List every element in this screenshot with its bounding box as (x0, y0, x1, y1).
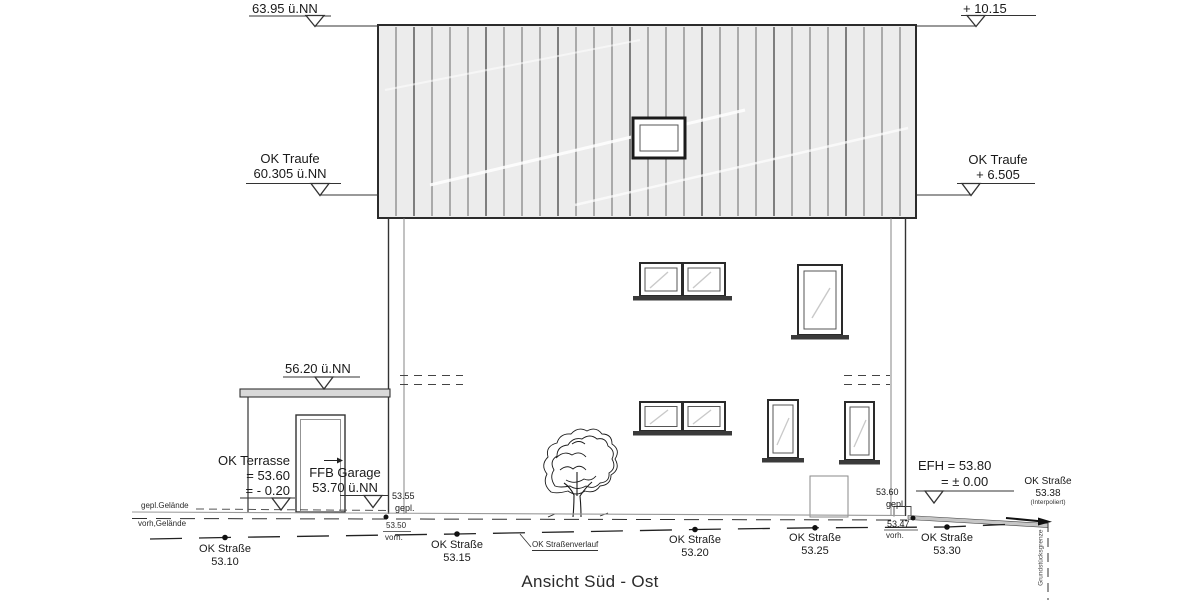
street-course-label: OK Straßenverlauf (532, 540, 598, 551)
ridge-left-label: 63.95 ü.NN (252, 2, 318, 17)
street-point-dot (812, 525, 818, 531)
window-lower-narrow-1 (762, 400, 804, 463)
level-marker-traufe-left (246, 184, 379, 196)
level-marker-ffb-garage (340, 496, 388, 508)
ffb-garage-label: FFB Garage 53.70 ü.NN (303, 466, 387, 496)
right-point-planned-value: 53.60 (876, 487, 899, 497)
interpolated-arrow (1006, 518, 1040, 521)
elevation-sheet: 63.95 ü.NN + 10.15 OK Traufe 60.305 ü.NN… (0, 0, 1200, 600)
window-lower-double (633, 402, 732, 436)
existing-ground-line (132, 519, 907, 521)
garage-roof-label: 56.20 ü.NN (285, 362, 351, 377)
window-sill (762, 458, 804, 463)
right-point-planned-suffix: gepl. (886, 499, 906, 509)
street-point-dot (454, 531, 460, 537)
window-upper-double (633, 263, 732, 301)
window-lower-narrow-2 (839, 402, 880, 465)
roof-window (633, 118, 685, 158)
level-marker-ridge-left (249, 16, 379, 27)
street-point-label: OK Straße 53.15 (417, 539, 497, 564)
garage-roof-slab (240, 389, 390, 397)
window-sill (633, 296, 732, 301)
traufe-left-label: OK Traufe 60.305 ü.NN (240, 152, 340, 182)
planned-ground-line (132, 512, 905, 516)
left-point-existing-value: 53.50 (386, 521, 406, 530)
window-sill (791, 335, 849, 340)
street-point-label: OK Straße 53.30 (907, 532, 987, 557)
wall-base-dot-right (911, 516, 916, 521)
street-point-label: OK Straße 53.10 (185, 543, 265, 568)
right-point-existing-value: 53.47 (887, 519, 910, 529)
basement-opening (810, 476, 848, 517)
street-course-leader (520, 534, 531, 547)
planned-ground-label: gepl.Gelände (141, 501, 189, 510)
street-point-interpolated-label: OK Straße 53.38 (Interpoliert) (1014, 476, 1082, 506)
street-point-label: OK Straße 53.25 (775, 532, 855, 557)
wall-base-dot-left (384, 515, 389, 520)
tree (544, 429, 618, 517)
left-point-planned-suffix: gepl. (395, 503, 415, 513)
left-point-planned-value: 53.55 (392, 491, 415, 501)
right-point-existing-suffix: vorh. (886, 531, 904, 540)
street-point-dot (944, 524, 950, 530)
existing-ground-label: vorh,Gelände (138, 519, 186, 528)
window-sill (633, 431, 732, 436)
page-title: Ansicht Süd - Ost (440, 572, 740, 592)
left-point-existing-suffix: vorh. (385, 533, 403, 542)
street-point-label: OK Straße 53.20 (655, 534, 735, 559)
street-point-dot (222, 535, 228, 541)
traufe-right-label: OK Traufe + 6.505 (952, 153, 1044, 183)
ridge-right-label: + 10.15 (963, 2, 1007, 17)
slab-dashed-lines (400, 376, 890, 385)
efh-zero-label: = ± 0.00 (941, 475, 988, 490)
terrace-level-line (196, 509, 390, 511)
garage-door (296, 415, 345, 512)
window-sill (839, 460, 880, 465)
level-marker-ridge-right (917, 16, 1036, 27)
boundary (1006, 518, 1052, 600)
level-marker-garage-roof (283, 377, 360, 389)
pavement-wedge (908, 516, 1048, 528)
street-point-dot (692, 527, 698, 533)
boundary-label: Grundstücksgrenze (1037, 498, 1044, 600)
level-marker-efh (916, 491, 1014, 503)
terrasse-label: OK Terrasse = 53.60 = - 0.20 (198, 454, 290, 499)
roof (378, 25, 916, 218)
window-upper-tall (791, 265, 849, 340)
level-marker-traufe-right (917, 184, 1035, 196)
efh-label: EFH = 53.80 (918, 459, 991, 474)
